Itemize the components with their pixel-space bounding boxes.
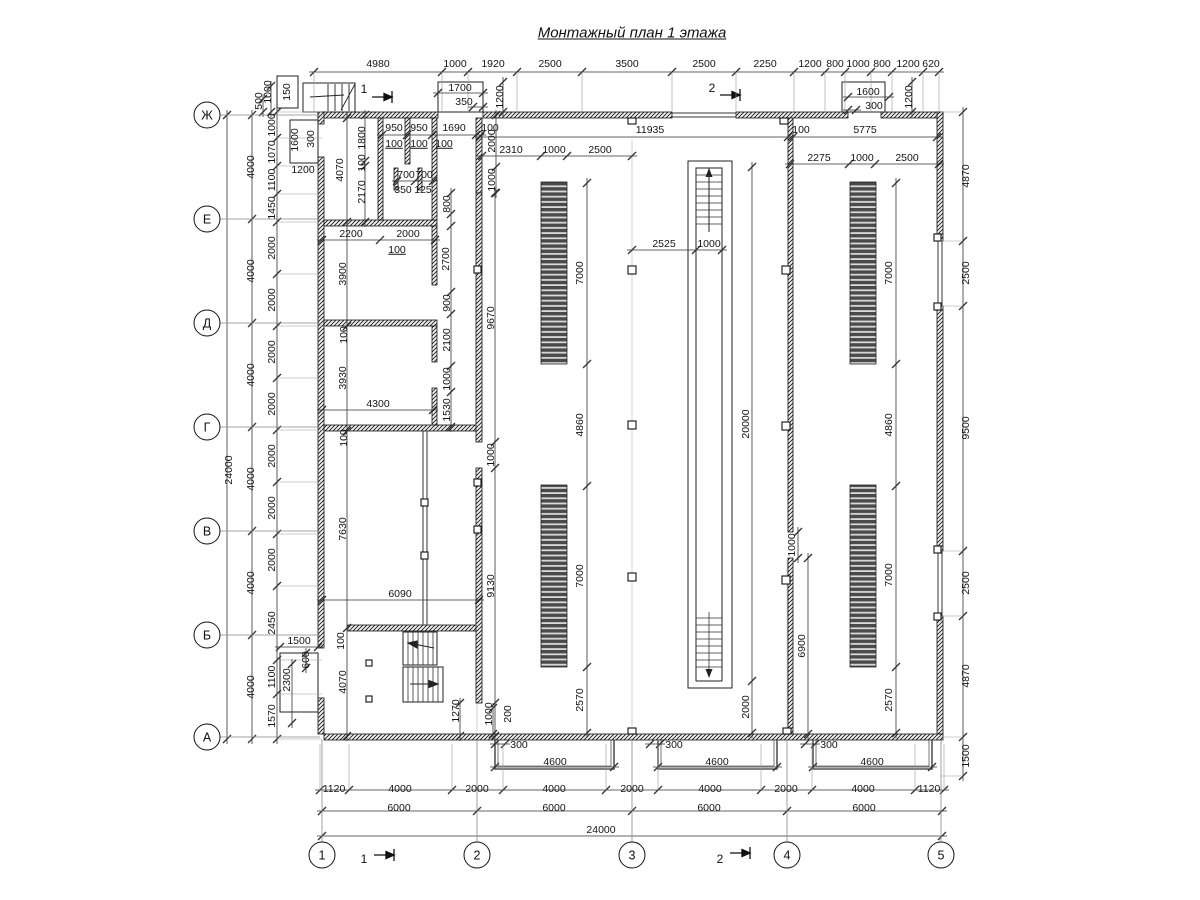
dim-label: 620 [922, 59, 940, 70]
dim-label: 4000 [388, 784, 411, 795]
dim-label: 3900 [338, 262, 349, 285]
dim-label: 1200 [291, 165, 314, 176]
dim-label: 1270 [451, 699, 462, 722]
dim-label: 1100 [267, 169, 278, 192]
dim-label: 2200 [339, 229, 362, 240]
dim-label: 1200 [798, 59, 821, 70]
dim-label: 100 [336, 632, 347, 650]
dim-label: 2570 [575, 688, 586, 711]
dim-label: 1000 [787, 533, 798, 556]
section-mark-label: 1 [361, 852, 368, 866]
dim-label: 1600 [290, 128, 301, 151]
dim-label: 100 [410, 139, 428, 150]
dim-label: 350 [455, 97, 473, 108]
dim-label: 800 [442, 195, 453, 213]
dim-label: 300 [306, 130, 317, 148]
dim-label: 2500 [538, 59, 561, 70]
dim-label: 1000 [487, 168, 498, 191]
dim-label: 2500 [961, 261, 972, 284]
dim-label: 6000 [542, 803, 565, 814]
axis-bubble-row-Е: Е [194, 206, 221, 233]
dim-label: 100 [435, 139, 453, 150]
dim-label: 5775 [853, 125, 876, 136]
dim-label: 2000 [487, 129, 498, 152]
section-mark-label: 1 [361, 82, 368, 96]
axis-bubble-row-А: А [194, 724, 221, 751]
dim-label: 300 [665, 740, 683, 751]
axis-bubble-col-1: 1 [309, 842, 336, 869]
dim-label: 6000 [697, 803, 720, 814]
axis-bubble-col-2: 2 [464, 842, 491, 869]
dim-label: 2570 [884, 688, 895, 711]
dim-label: 2000 [267, 444, 278, 467]
dim-label: 1690 [442, 123, 465, 134]
dim-label: 2000 [396, 229, 419, 240]
dim-label: 7000 [575, 564, 586, 587]
dim-label: 800 [873, 59, 891, 70]
dim-label: 100 [385, 139, 403, 150]
dim-label: 800 [826, 59, 844, 70]
dim-label: 4600 [543, 757, 566, 768]
dim-label: 950 [410, 123, 428, 134]
dim-label: 2700 [441, 247, 452, 270]
dim-label: 2450 [267, 611, 278, 634]
dim-label: 2000 [465, 784, 488, 795]
dim-label: 1000 [267, 113, 278, 136]
dim-label: 7000 [884, 261, 895, 284]
dim-label: 700 [415, 170, 433, 181]
dim-label: 1000 [486, 443, 497, 466]
dim-label: 24000 [224, 455, 235, 484]
axis-bubble-row-В: В [194, 518, 221, 545]
dim-label: 2250 [753, 59, 776, 70]
dim-label: 300 [820, 740, 838, 751]
dim-label: 6000 [387, 803, 410, 814]
dim-label: 2300 [282, 668, 293, 691]
dim-label: 1600 [856, 87, 879, 98]
dim-label: 2000 [741, 695, 752, 718]
dim-label: 150 [282, 83, 293, 101]
dim-label: 1000 [442, 367, 453, 390]
dim-label: 2500 [588, 145, 611, 156]
dim-label: 1500 [287, 636, 310, 647]
dim-label: 1000 [697, 239, 720, 250]
dim-label: 4070 [335, 158, 346, 181]
dim-label: 24000 [586, 825, 615, 836]
dim-label: 7000 [884, 563, 895, 586]
dim-label: 2275 [807, 153, 830, 164]
dim-label: 4000 [698, 784, 721, 795]
dim-label: 2000 [267, 236, 278, 259]
dim-label: 2000 [620, 784, 643, 795]
axis-bubble-col-4: 4 [774, 842, 801, 869]
section-mark-label: 2 [717, 852, 724, 866]
axis-bubble-row-Б: Б [194, 622, 221, 649]
dim-label: 1070 [267, 140, 278, 163]
dim-label: 1120 [323, 784, 346, 795]
dim-label: 4000 [542, 784, 565, 795]
dim-label: 125 [414, 185, 432, 196]
axis-bubble-row-Д: Д [194, 310, 221, 337]
dim-label: 1000 [846, 59, 869, 70]
dim-label: 100 [339, 326, 350, 344]
dim-label: 1000 [263, 80, 274, 103]
dim-label: 1120 [918, 784, 941, 795]
dim-label: 4870 [961, 664, 972, 687]
dim-label: 7000 [575, 261, 586, 284]
dim-label: 4000 [246, 155, 257, 178]
dim-label: 4600 [860, 757, 883, 768]
dim-label: 1200 [495, 85, 506, 108]
dim-label: 1800 [357, 126, 368, 149]
entrance-stair [303, 83, 355, 112]
dim-label: 1920 [481, 59, 504, 70]
dim-label: 2310 [499, 145, 522, 156]
dim-label: 2500 [692, 59, 715, 70]
entrance-stair-treads [310, 84, 355, 111]
dim-label: 1500 [961, 744, 972, 767]
dim-label: 1200 [896, 59, 919, 70]
dim-label: 4870 [961, 164, 972, 187]
dim-label: 1100 [267, 666, 278, 689]
dim-label: 1530 [442, 398, 453, 421]
dim-label: 2000 [267, 496, 278, 519]
dim-label: 4860 [575, 413, 586, 436]
dim-label: 4860 [884, 413, 895, 436]
dim-label: 2100 [442, 328, 453, 351]
dim-label: 2000 [267, 548, 278, 571]
dim-label: 11935 [636, 125, 664, 136]
dim-label: 6900 [797, 634, 808, 657]
dim-label: 20000 [741, 409, 752, 438]
dim-label: 4000 [246, 259, 257, 282]
equipment-bars [541, 182, 876, 667]
dim-label: 900 [442, 294, 453, 312]
dim-label: 1450 [267, 196, 278, 219]
dim-label: 350 [394, 185, 412, 196]
plan-drawing-layer [0, 0, 1200, 900]
dim-label: 2000 [267, 340, 278, 363]
dim-label: 1570 [267, 704, 278, 727]
dim-label: 7630 [338, 517, 349, 540]
drawing-title: Монтажный план 1 этажа [538, 25, 727, 42]
dim-label: 2000 [267, 392, 278, 415]
dim-label: 1000 [850, 153, 873, 164]
dim-label: 2525 [652, 239, 675, 250]
dim-label: 100 [357, 154, 368, 172]
dim-label: 4000 [851, 784, 874, 795]
dim-label: 9130 [486, 574, 497, 597]
axis-bubble-row-Ж: Ж [194, 102, 221, 129]
dim-label: 1200 [904, 85, 915, 108]
dim-label: 3930 [338, 366, 349, 389]
dim-label: 9500 [961, 416, 972, 439]
dim-label: 6090 [388, 589, 411, 600]
dim-label: 1000 [443, 59, 466, 70]
dim-label: 4000 [246, 467, 257, 490]
dim-label: 300 [865, 101, 883, 112]
dim-label: 4980 [366, 59, 389, 70]
dim-label: 4000 [246, 571, 257, 594]
dim-label: 4300 [366, 399, 389, 410]
dim-label: 100 [339, 429, 350, 447]
dim-label: 1700 [448, 83, 471, 94]
outline-boxes [277, 76, 885, 712]
section-mark-label: 2 [709, 81, 716, 95]
dim-label: 600 [301, 651, 312, 669]
dim-label: 9670 [486, 306, 497, 329]
dim-label: 100 [792, 125, 810, 136]
dim-label: 3500 [615, 59, 638, 70]
axis-bubble-col-5: 5 [928, 842, 955, 869]
floor-plan-canvas: Монтажный план 1 этажа 49801000192025003… [0, 0, 1200, 900]
dim-label: 950 [385, 123, 403, 134]
dim-label: 700 [397, 170, 415, 181]
dim-label: 1000 [542, 145, 565, 156]
dim-label: 100 [388, 245, 406, 256]
dim-label: 2000 [267, 288, 278, 311]
dim-label: 300 [510, 740, 528, 751]
dim-label: 2500 [961, 571, 972, 594]
dim-label: 4000 [246, 363, 257, 386]
dim-label: 4000 [246, 675, 257, 698]
dim-label: 2500 [895, 153, 918, 164]
axis-bubble-col-3: 3 [619, 842, 646, 869]
dim-label: 1000 [484, 702, 495, 725]
dim-label: 200 [503, 705, 514, 723]
dim-label: 2170 [357, 180, 368, 203]
dim-label: 4070 [338, 670, 349, 693]
dim-label: 6000 [852, 803, 875, 814]
dim-label: 2000 [774, 784, 797, 795]
axis-bubble-row-Г: Г [194, 414, 221, 441]
dim-label: 4600 [705, 757, 728, 768]
